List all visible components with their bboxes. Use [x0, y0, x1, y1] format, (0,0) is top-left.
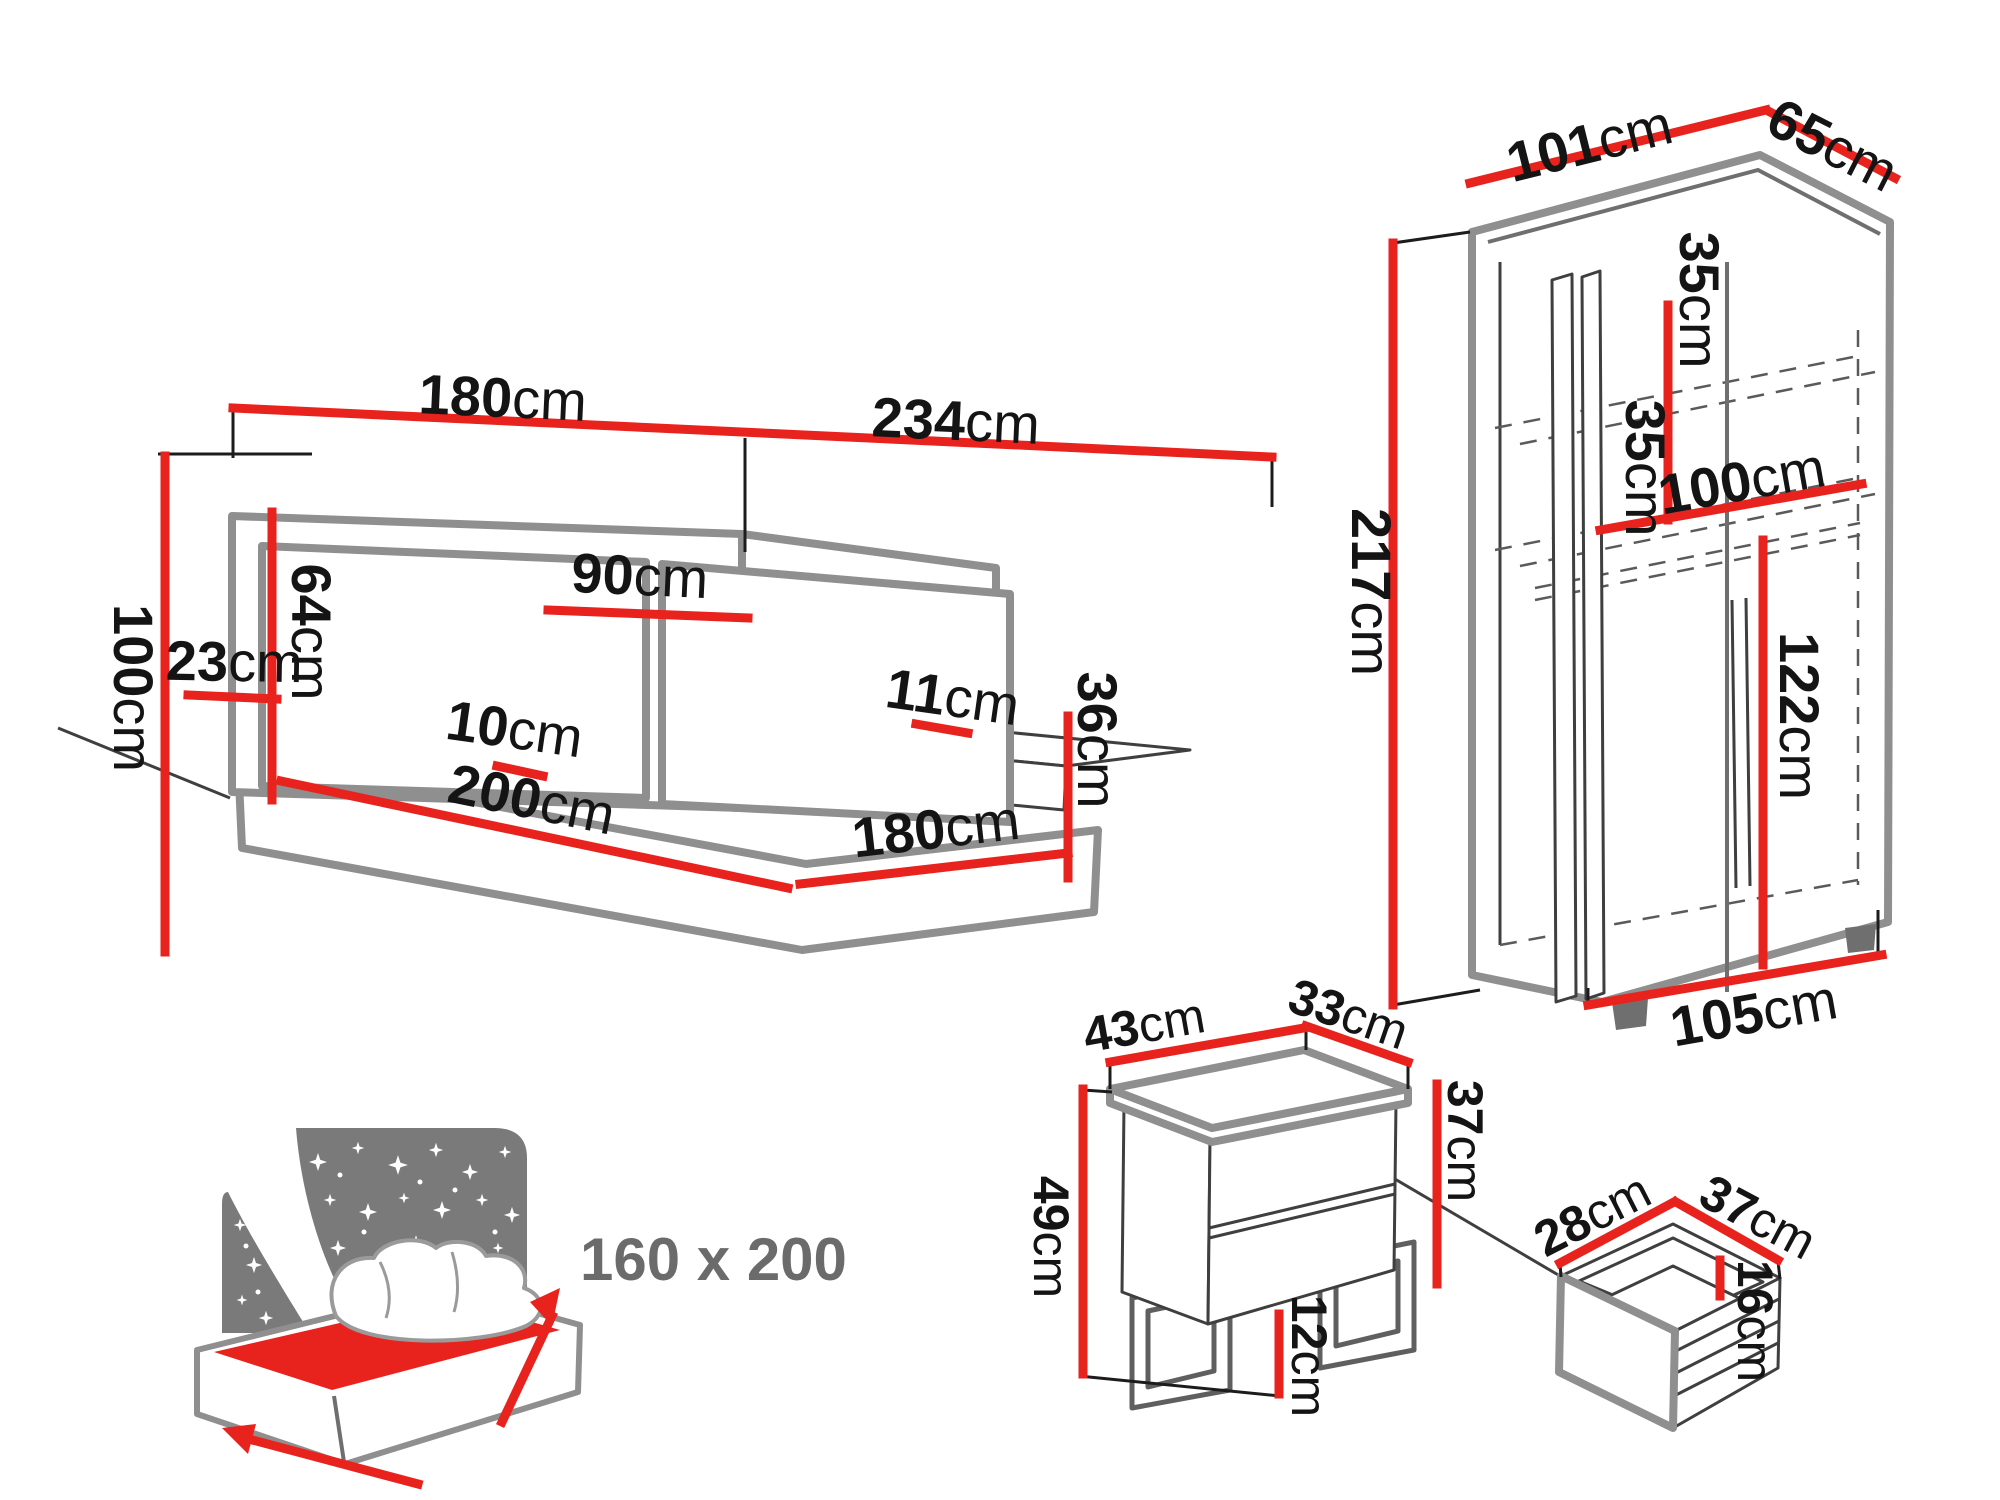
dim-wardrobe-hanging-height: 122cm — [1768, 632, 1831, 800]
bed-size-icon: 160 x 200 — [197, 1128, 847, 1484]
dim-nightstand-total-height: 49cm — [1023, 1176, 1079, 1298]
drawer-diagram: 28cm 37cm 16cm — [1525, 1162, 1825, 1428]
dim-bed-cushion: 90cm — [570, 541, 710, 610]
dim-drawer-height: 16cm — [1727, 1260, 1783, 1382]
wardrobe-open-door-edge-left — [1552, 274, 1576, 1002]
dim-bed-width-right: 234cm — [870, 385, 1041, 456]
dim-nightstand-leg-height: 12cm — [1281, 1295, 1337, 1417]
tick — [1393, 990, 1480, 1005]
dim-bed-footboard-height: 36cm — [1066, 672, 1129, 809]
dim-wardrobe-top-width: 101cm — [1500, 92, 1678, 194]
dim-bed-headboard-lower: 23cm — [165, 629, 303, 694]
bed-size-label: 160 x 200 — [580, 1226, 847, 1293]
dim-bed-width-left: 180cm — [417, 362, 588, 433]
tick — [1393, 232, 1470, 243]
dim-bed-headboard-total: 100cm — [102, 604, 165, 772]
dimension-line-bed-width — [233, 408, 1272, 457]
nightstand-diagram: 43cm 33cm 37cm 49cm 12cm — [1023, 968, 1560, 1418]
length-arrow-head-icon — [222, 1424, 256, 1454]
dimension-line-bed-headboard-lower — [188, 695, 277, 699]
wardrobe-diagram: 101cm 65cm 217cm 35cm 35cm 100cm 122cm 1… — [1340, 85, 1908, 1058]
bed-diagram: 180cm 234cm 90cm 64cm 23cm 100cm 10cm 20… — [58, 362, 1272, 952]
wardrobe-foot-right — [1845, 924, 1876, 953]
dim-wardrobe-height: 217cm — [1340, 508, 1403, 676]
dim-wardrobe-shelf-gap-1: 35cm — [1668, 232, 1731, 369]
wardrobe-open-door-edge-right — [1582, 271, 1604, 999]
furniture-dimensions-diagram: 180cm 234cm 90cm 64cm 23cm 100cm 10cm 20… — [0, 0, 2000, 1500]
dim-nightstand-body-height: 37cm — [1437, 1080, 1493, 1202]
